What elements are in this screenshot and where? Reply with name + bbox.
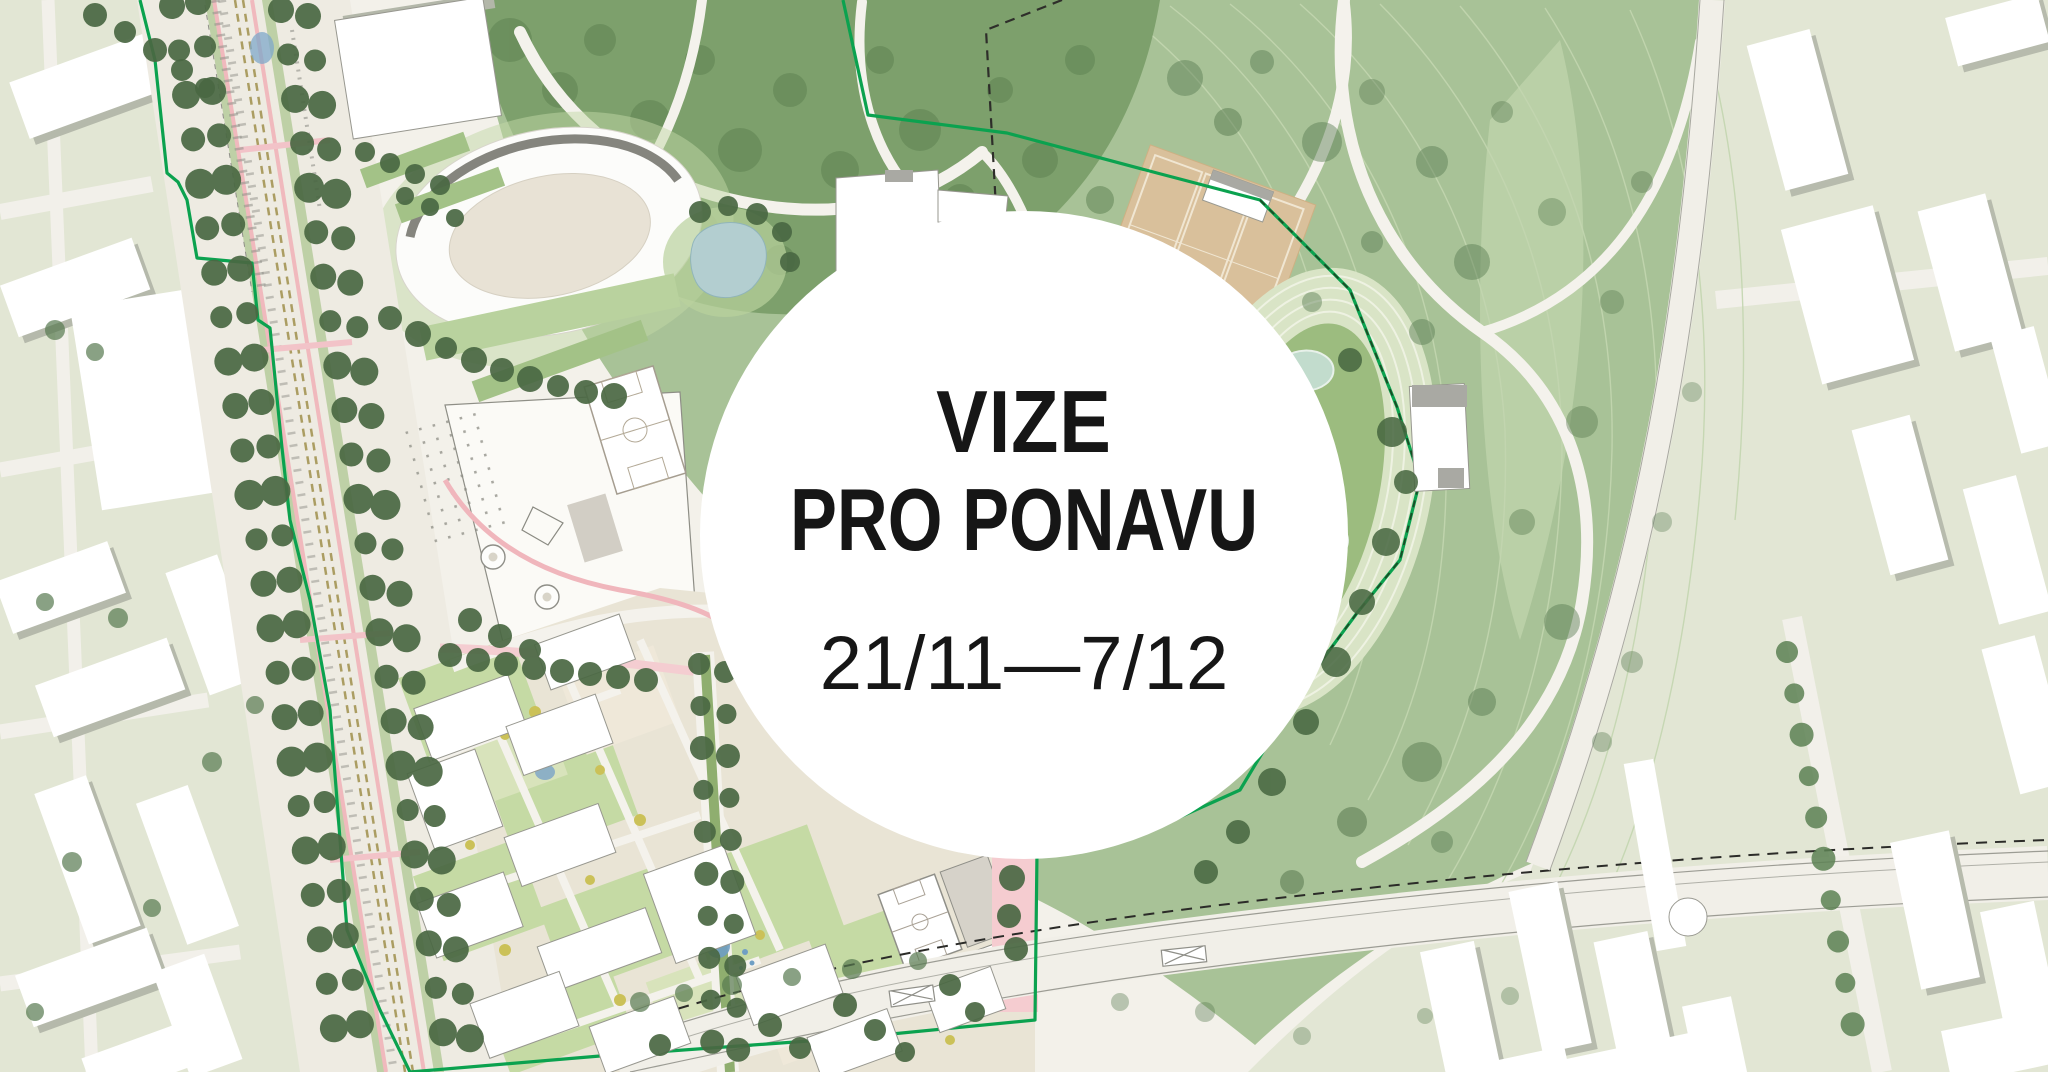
boulevard-pond — [250, 32, 274, 64]
event-title-line2: PRO PONAVU — [765, 472, 1283, 568]
event-title-line1: VIZE — [739, 374, 1309, 470]
poster: VIZE PRO PONAVU 21/11—7/12 — [0, 0, 2048, 1072]
stadium-pond — [663, 207, 787, 317]
event-dates: 21/11—7/12 — [700, 620, 1348, 708]
event-badge-circle: VIZE PRO PONAVU 21/11—7/12 — [700, 211, 1348, 859]
